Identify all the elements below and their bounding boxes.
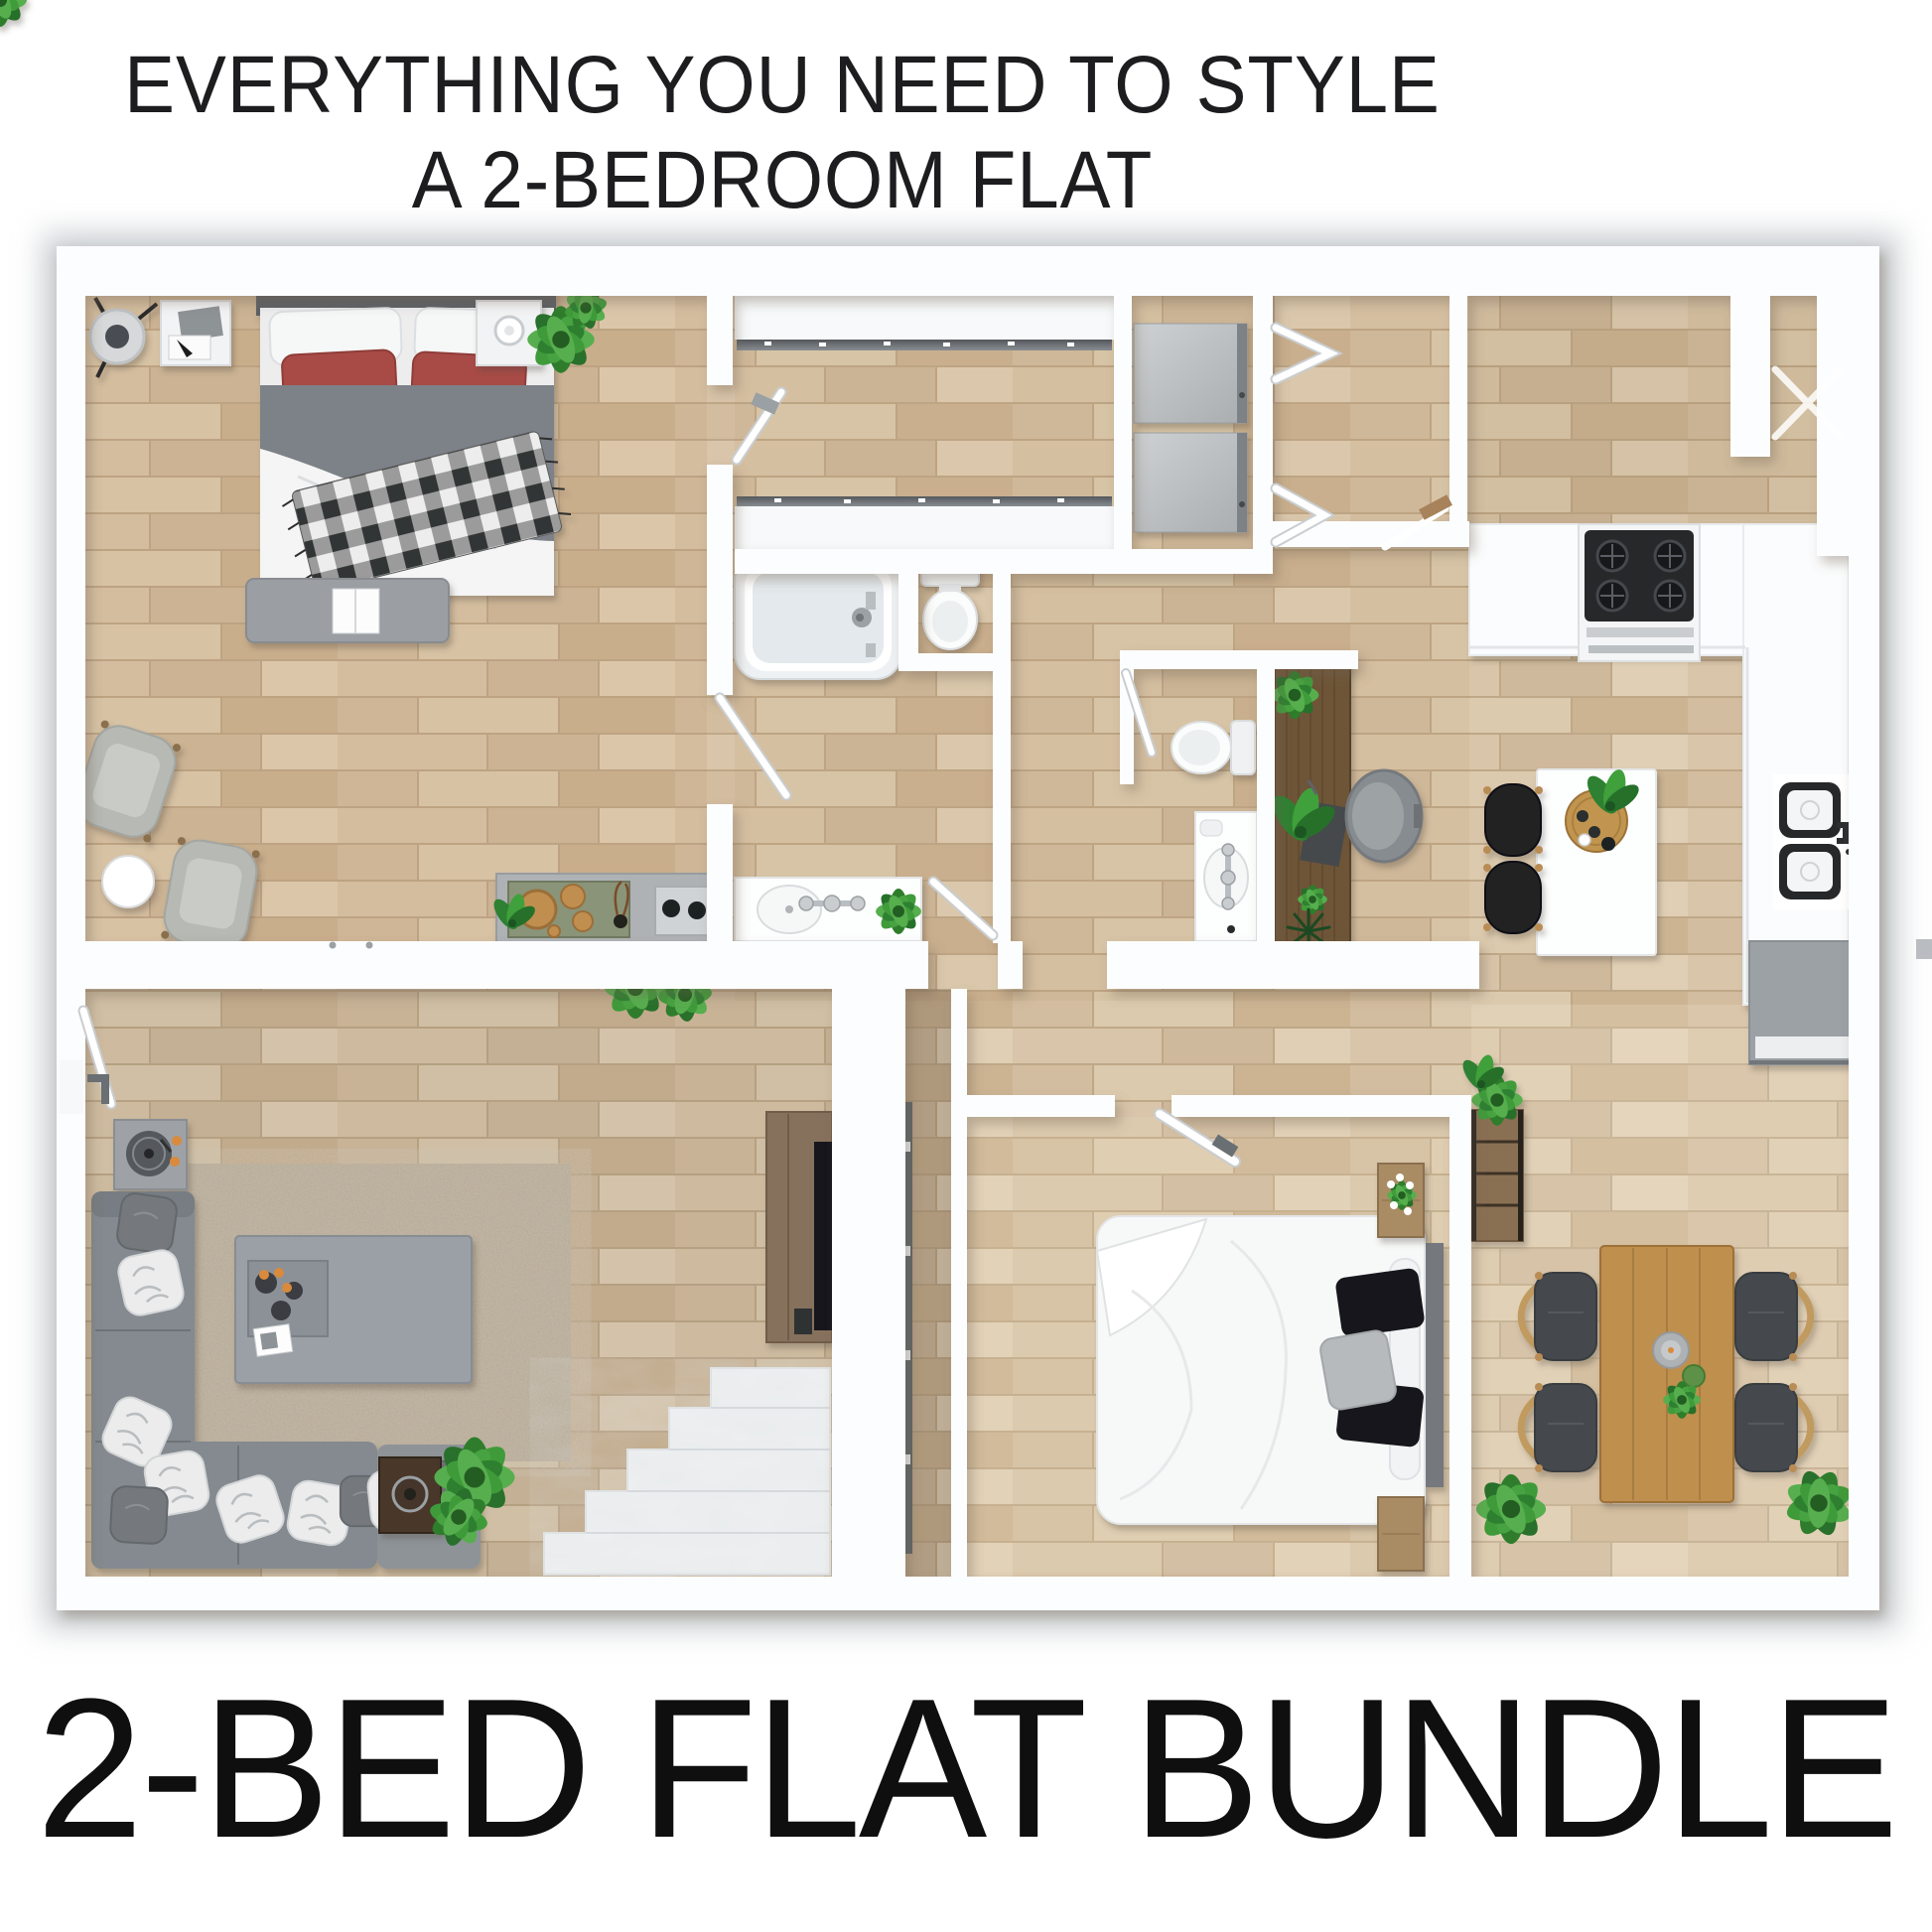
toilet-ensuite bbox=[1172, 721, 1255, 774]
title-line-1: EVERYTHING YOU NEED TO STYLE bbox=[55, 38, 1510, 133]
sliding-door-channel bbox=[903, 989, 951, 1577]
second-bedroom bbox=[1097, 1164, 1444, 1571]
wall-mounted-tv bbox=[814, 1142, 832, 1330]
office-chair bbox=[1346, 770, 1422, 862]
floor-plant bbox=[1476, 1474, 1546, 1544]
vanity-main bbox=[735, 878, 921, 941]
bathtub bbox=[735, 556, 901, 679]
record-player-table bbox=[114, 1120, 187, 1189]
page-title: EVERYTHING YOU NEED TO STYLE A 2-BEDROOM… bbox=[55, 38, 1510, 228]
vanity-ensuite bbox=[1195, 812, 1257, 941]
edge-artifact bbox=[1916, 939, 1932, 959]
product-name: 2-BED FLAT BUNDLE bbox=[29, 1670, 1903, 1868]
coffee-table bbox=[235, 1236, 472, 1383]
door-hinge bbox=[366, 942, 373, 949]
dresser-console bbox=[489, 874, 721, 943]
round-side-table bbox=[102, 856, 154, 907]
gas-stove bbox=[1579, 524, 1700, 661]
title-line-2: A 2-BEDROOM FLAT bbox=[55, 133, 1510, 228]
clothes-rail-top bbox=[737, 340, 1112, 350]
wood-desk bbox=[1266, 655, 1350, 952]
dryer bbox=[1134, 433, 1247, 532]
magazine bbox=[253, 1324, 293, 1357]
tv-console bbox=[766, 1112, 832, 1342]
foot-bench bbox=[246, 579, 449, 642]
floorplan-render bbox=[0, 0, 1932, 1932]
under-counter-appliance bbox=[1749, 941, 1859, 1064]
dark-side-table bbox=[379, 1457, 441, 1533]
gray-pillow bbox=[1318, 1329, 1397, 1412]
black-pillow bbox=[1334, 1267, 1426, 1337]
kitchen-island bbox=[1537, 767, 1656, 955]
bed-second bbox=[1097, 1216, 1444, 1524]
nightstand-left bbox=[161, 301, 230, 365]
double-sink bbox=[1773, 774, 1852, 909]
washer bbox=[1134, 324, 1247, 423]
nightstand-right bbox=[477, 301, 541, 365]
door-hinge bbox=[330, 942, 337, 949]
